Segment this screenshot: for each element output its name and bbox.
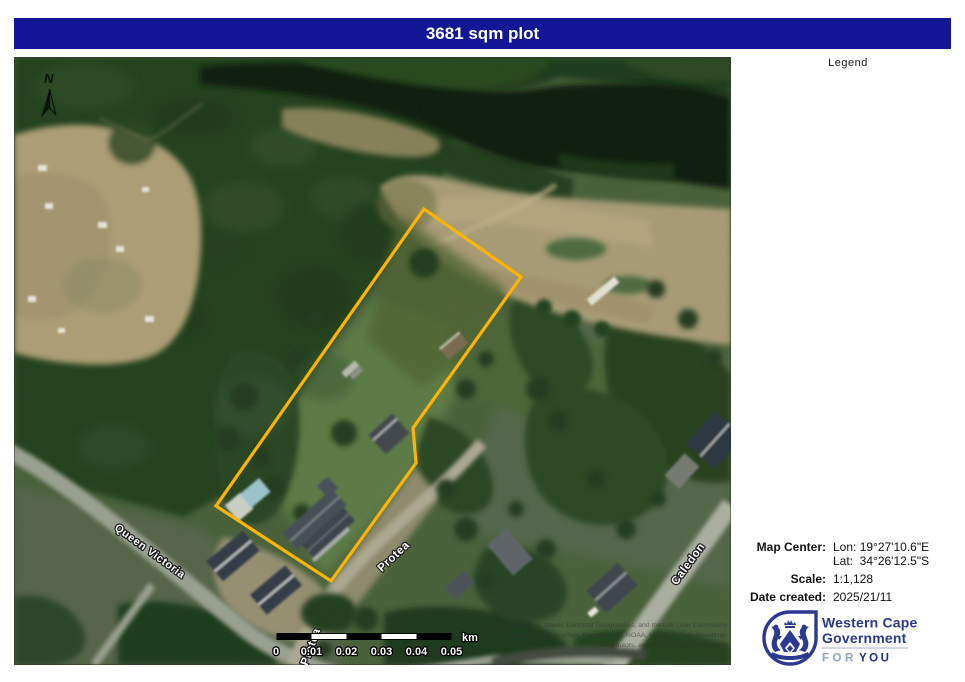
svg-text:Government: Government <box>822 630 907 646</box>
svg-text:km: km <box>462 632 478 644</box>
svg-text:0.05: 0.05 <box>441 646 462 658</box>
svg-text:N: N <box>44 71 54 86</box>
svg-text:0.01: 0.01 <box>301 646 322 658</box>
svg-text:Sources: Esri, TomTom, Garmin,: Sources: Esri, TomTom, Garmin, FAO, NOAA… <box>509 631 727 639</box>
svg-text:0.04: 0.04 <box>406 646 428 658</box>
svg-text:YOU: YOU <box>859 653 891 665</box>
svg-text:0: 0 <box>273 646 279 658</box>
svg-text:0.03: 0.03 <box>371 646 392 658</box>
svg-text:Source: Esri, Maxar, Earthstar: Source: Esri, Maxar, Earthstar Geographi… <box>503 622 727 629</box>
svg-text:contributors, and the GIS User: contributors, and the GIS User Community <box>599 642 728 649</box>
svg-text:Western Cape: Western Cape <box>822 615 918 631</box>
svg-text:FOR: FOR <box>822 653 857 665</box>
svg-text:0.02: 0.02 <box>336 646 357 658</box>
